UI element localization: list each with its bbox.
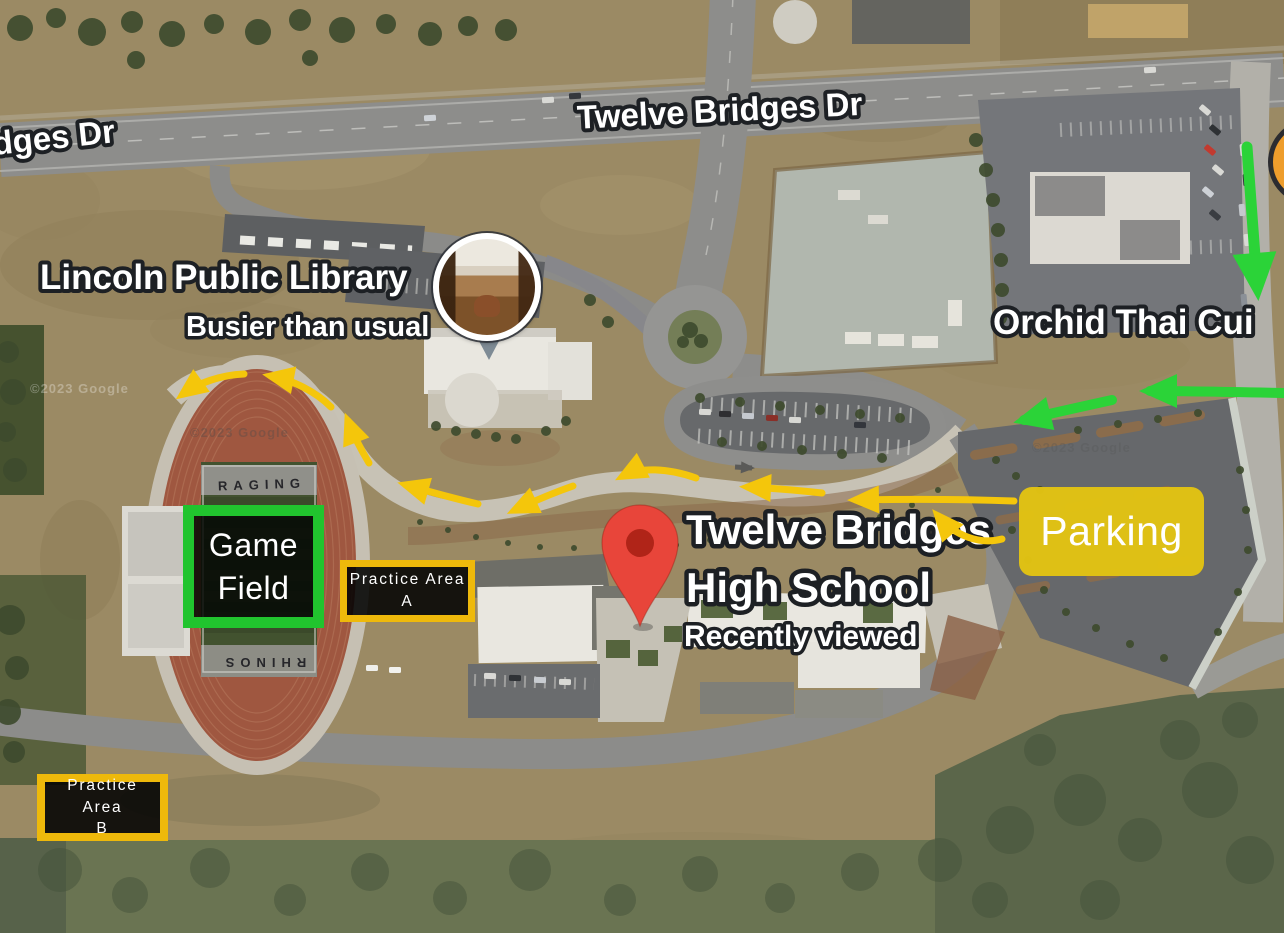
yellow-route-segment — [348, 421, 369, 463]
practice-area-b-line2: B — [96, 818, 108, 840]
yellow-route-segment — [748, 487, 822, 493]
road-direction-arrow — [735, 467, 752, 468]
poi-label-restaurant[interactable]: Orchid Thai Cui — [993, 303, 1254, 342]
street-label-twelve-bridges-dr: Twelve Bridges Dr — [576, 85, 863, 136]
yellow-route-segment — [623, 470, 696, 478]
green-driving-route — [1024, 147, 1283, 420]
game-field-label-line1: Game — [209, 524, 298, 566]
poi-label-school-line1[interactable]: Twelve Bridges — [686, 506, 991, 553]
green-route-arrow-left2 — [1024, 400, 1112, 420]
green-route-arrow-left — [1150, 391, 1283, 393]
game-field-box[interactable]: Game Field — [183, 505, 324, 628]
practice-area-b-box[interactable]: Practice Area B — [37, 774, 168, 841]
yellow-route-segment — [406, 485, 478, 504]
red-map-pin[interactable] — [602, 505, 678, 631]
parking-label-text: Parking — [1040, 508, 1183, 555]
poi-label-school-line2[interactable]: High School — [686, 564, 931, 611]
yellow-route-segment — [271, 376, 331, 407]
practice-area-a-line1: Practice Area — [350, 569, 466, 591]
poi-status-library: Busier than usual — [186, 311, 429, 343]
map-overlay: Twelve Bridges Dr dges Dr Lincoln Public… — [0, 0, 1284, 933]
practice-area-b-line1: Practice Area — [45, 775, 160, 818]
yellow-route-segment — [515, 486, 573, 510]
practice-area-a-box[interactable]: Practice Area A — [340, 560, 475, 622]
yellow-route-segment — [856, 499, 1014, 501]
poi-label-library[interactable]: Lincoln Public Library — [40, 258, 408, 297]
street-label-partial: dges Dr — [0, 112, 117, 162]
parking-label[interactable]: Parking — [1019, 487, 1204, 576]
poi-status-school: Recently viewed — [684, 620, 917, 653]
game-field-label-line2: Field — [218, 567, 290, 609]
practice-area-a-line2: A — [401, 591, 413, 613]
green-route-arrow-down — [1247, 147, 1257, 284]
library-photo-marker[interactable] — [433, 233, 541, 341]
map-viewport: RAGING RHINOS — [0, 0, 1284, 933]
yellow-route-segment — [183, 374, 244, 394]
